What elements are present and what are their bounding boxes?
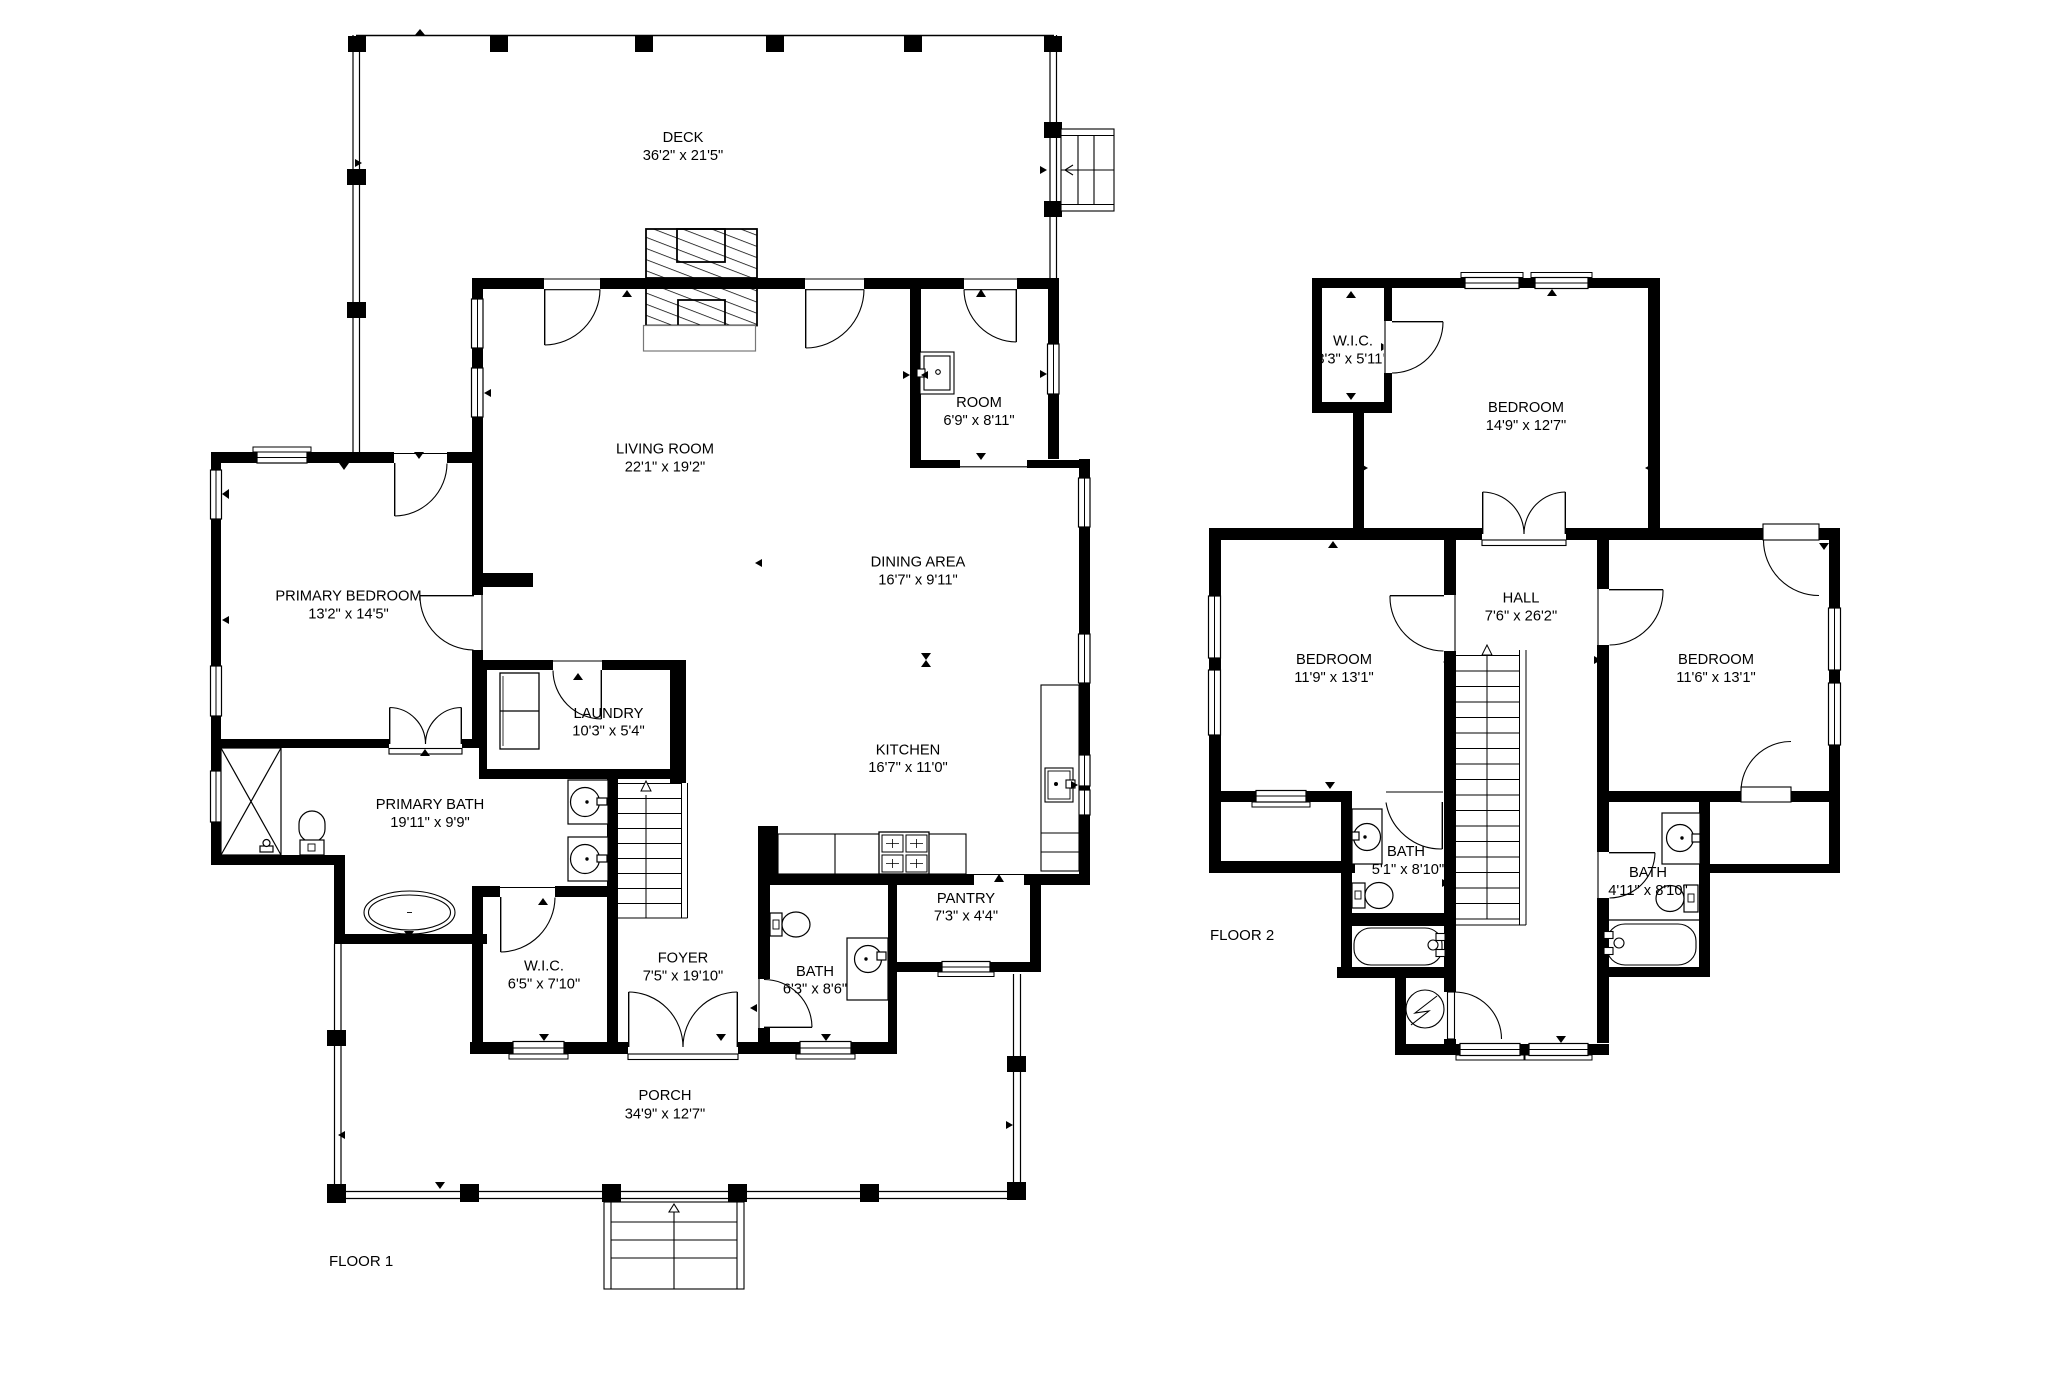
svg-text:5'1" x 8'10": 5'1" x 8'10" (1372, 862, 1444, 878)
svg-text:HALL: HALL (1503, 591, 1540, 607)
svg-text:34'9" x 12'7": 34'9" x 12'7" (625, 1107, 706, 1123)
svg-text:BATH: BATH (796, 964, 834, 980)
svg-text:13'2" x 14'5": 13'2" x 14'5" (308, 607, 389, 623)
svg-text:4'11" x 8'10": 4'11" x 8'10" (1608, 883, 1687, 899)
svg-text:KITCHEN: KITCHEN (876, 743, 940, 759)
svg-text:FLOOR 1: FLOOR 1 (329, 1253, 393, 1270)
svg-text:11'9" x 13'1": 11'9" x 13'1" (1294, 670, 1373, 686)
svg-text:W.I.C.: W.I.C. (1333, 334, 1373, 350)
svg-text:FOYER: FOYER (658, 951, 709, 967)
svg-text:22'1" x 19'2": 22'1" x 19'2" (625, 460, 706, 476)
svg-text:PRIMARY BATH: PRIMARY BATH (376, 797, 485, 813)
svg-text:14'9" x 12'7": 14'9" x 12'7" (1486, 418, 1567, 434)
svg-text:16'7" x 9'11": 16'7" x 9'11" (878, 573, 957, 589)
svg-text:36'2" x 21'5": 36'2" x 21'5" (643, 148, 724, 164)
svg-text:LIVING ROOM: LIVING ROOM (616, 442, 714, 458)
svg-text:BEDROOM: BEDROOM (1678, 652, 1754, 668)
svg-text:11'6" x 13'1": 11'6" x 13'1" (1676, 670, 1755, 686)
svg-text:BATH: BATH (1387, 844, 1425, 860)
svg-text:7'6" x 26'2": 7'6" x 26'2" (1485, 609, 1557, 625)
svg-text:PANTRY: PANTRY (937, 891, 995, 907)
svg-text:3'3" x 5'11": 3'3" x 5'11" (1316, 352, 1387, 368)
svg-text:DECK: DECK (663, 130, 704, 146)
svg-text:DINING AREA: DINING AREA (871, 555, 966, 571)
svg-text:BEDROOM: BEDROOM (1296, 652, 1372, 668)
svg-text:7'5" x 19'10": 7'5" x 19'10" (643, 969, 724, 985)
svg-text:PRIMARY BEDROOM: PRIMARY BEDROOM (275, 589, 421, 605)
svg-text:7'3" x 4'4": 7'3" x 4'4" (934, 909, 998, 925)
svg-text:PORCH: PORCH (638, 1088, 691, 1104)
svg-text:BEDROOM: BEDROOM (1488, 400, 1564, 416)
svg-text:16'7" x 11'0": 16'7" x 11'0" (868, 760, 947, 776)
svg-text:6'5" x 7'10": 6'5" x 7'10" (508, 977, 580, 993)
svg-text:6'9" x 8'11": 6'9" x 8'11" (943, 413, 1014, 429)
svg-text:LAUNDRY: LAUNDRY (574, 706, 644, 722)
svg-text:ROOM: ROOM (956, 395, 1002, 411)
svg-text:10'3" x 5'4": 10'3" x 5'4" (572, 724, 644, 740)
svg-text:BATH: BATH (1629, 865, 1667, 881)
svg-text:19'11" x 9'9": 19'11" x 9'9" (390, 815, 469, 831)
svg-text:FLOOR 2: FLOOR 2 (1210, 927, 1274, 944)
svg-text:6'3" x 8'6": 6'3" x 8'6" (783, 982, 847, 998)
svg-text:W.I.C.: W.I.C. (524, 959, 564, 975)
